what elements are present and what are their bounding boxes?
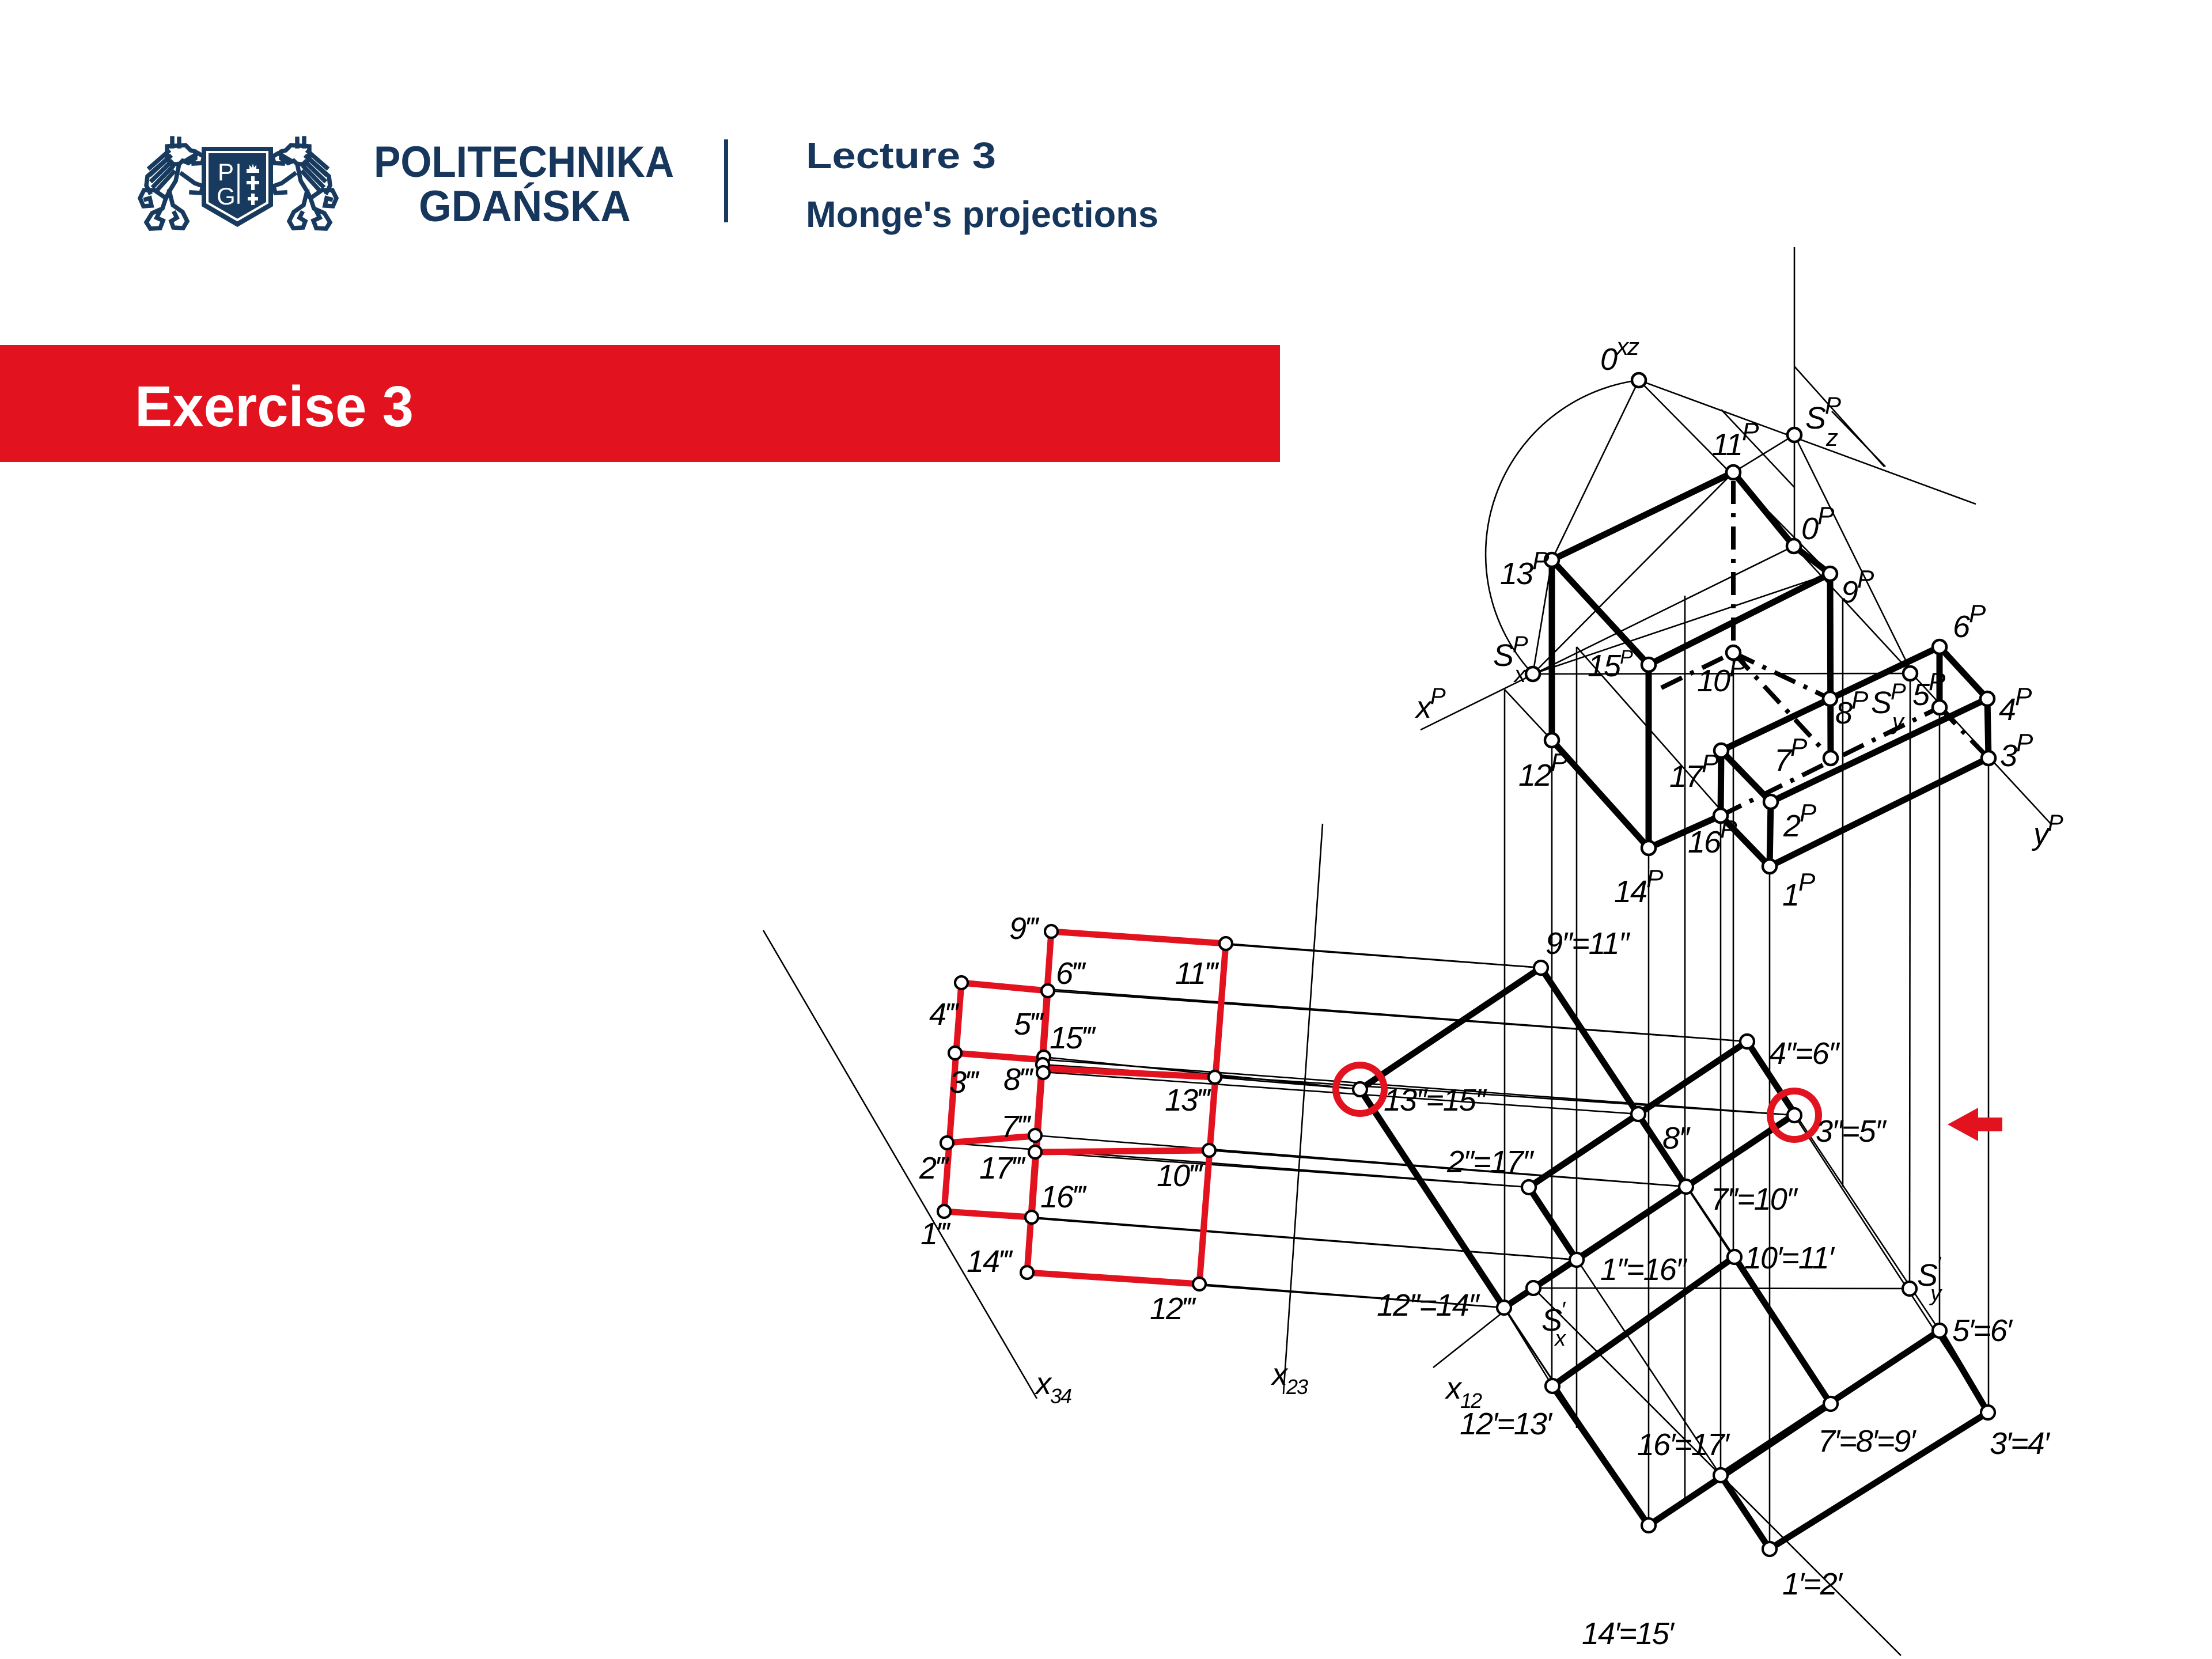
svg-text:10‴: 10‴	[1157, 1158, 1203, 1193]
svg-text:4″=6″: 4″=6″	[1769, 1036, 1840, 1071]
svg-text:13‴: 13‴	[1165, 1083, 1211, 1118]
svg-text:13″=15″: 13″=15″	[1384, 1083, 1487, 1118]
svg-text:P: P	[218, 158, 234, 185]
svg-text:16′=17′: 16′=17′	[1637, 1427, 1730, 1462]
svg-text:14′=15′: 14′=15′	[1582, 1616, 1675, 1651]
svg-text:5‴: 5‴	[1014, 1007, 1044, 1041]
svg-text:Lecture 3: Lecture 3	[806, 135, 996, 176]
svg-text:10′=11′: 10′=11′	[1744, 1241, 1835, 1275]
svg-text:8‴: 8‴	[1003, 1062, 1034, 1097]
svg-text:POLITECHNIKA: POLITECHNIKA	[374, 138, 674, 187]
svg-text:16‴: 16‴	[1040, 1180, 1087, 1214]
svg-text:5′=6′: 5′=6′	[1952, 1313, 2013, 1348]
svg-text:11‴: 11‴	[1175, 956, 1219, 991]
svg-text:3″=5″: 3″=5″	[1816, 1114, 1887, 1149]
svg-text:12‴: 12‴	[1150, 1291, 1196, 1326]
svg-text:15‴: 15‴	[1050, 1021, 1096, 1055]
svg-text:8″: 8″	[1662, 1121, 1691, 1156]
svg-text:1‴: 1‴	[921, 1217, 951, 1251]
svg-text:9‴: 9‴	[1009, 911, 1040, 946]
svg-text:3‴: 3‴	[949, 1065, 980, 1100]
svg-text:7‴: 7‴	[1001, 1109, 1032, 1144]
svg-text:2‴: 2‴	[919, 1151, 950, 1185]
svg-text:17‴: 17‴	[979, 1151, 1026, 1185]
svg-text:7′=8′=9′: 7′=8′=9′	[1818, 1424, 1916, 1459]
svg-text:1′=2′: 1′=2′	[1782, 1567, 1843, 1601]
svg-text:6‴: 6‴	[1056, 956, 1086, 991]
svg-text:7″=10″: 7″=10″	[1711, 1182, 1798, 1217]
svg-text:1″=16″: 1″=16″	[1600, 1252, 1688, 1287]
svg-text:Monge's projections: Monge's projections	[806, 194, 1158, 235]
svg-text:14‴: 14‴	[967, 1244, 1013, 1279]
svg-text:G: G	[217, 183, 236, 210]
svg-text:9″=11″: 9″=11″	[1546, 926, 1631, 961]
svg-text:4‴: 4‴	[929, 997, 960, 1032]
svg-text:3′=4′: 3′=4′	[1990, 1426, 2051, 1461]
svg-text:Exercise 3: Exercise 3	[135, 374, 414, 439]
svg-text:GDAŃSKA: GDAŃSKA	[419, 182, 631, 231]
svg-text:12″=14″: 12″=14″	[1377, 1288, 1480, 1323]
svg-text:2″=17″: 2″=17″	[1446, 1145, 1535, 1179]
